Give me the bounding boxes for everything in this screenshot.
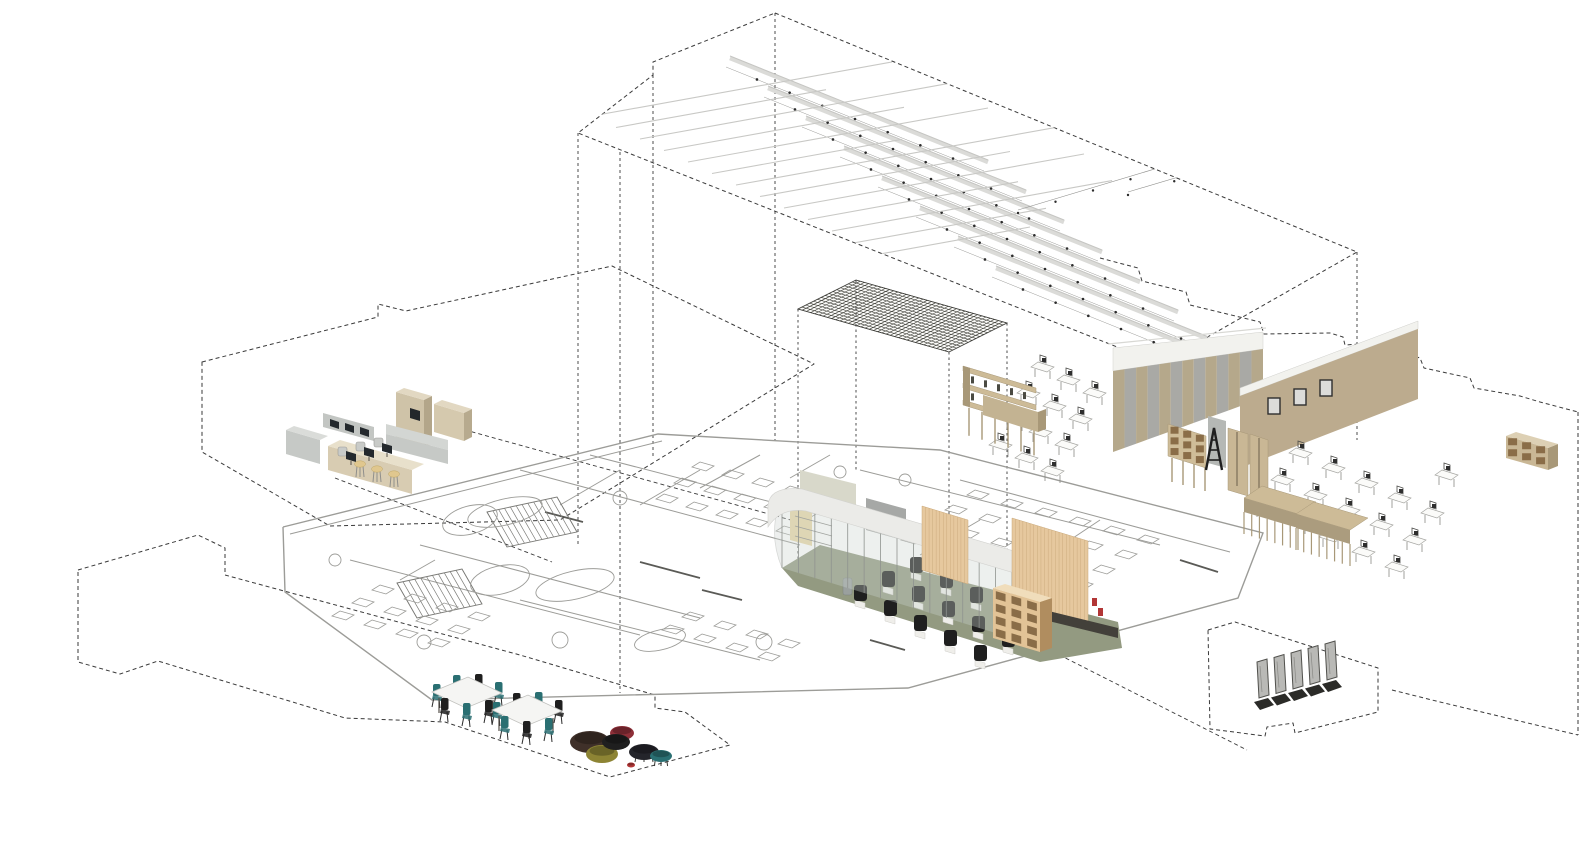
display-panel	[1294, 389, 1306, 405]
study-desk	[1271, 468, 1294, 492]
security-gate	[1305, 646, 1325, 697]
pouf	[602, 734, 630, 750]
task-chair	[356, 442, 365, 451]
plan-furniture-row	[662, 612, 800, 661]
pergola-canopy	[798, 280, 1007, 352]
study-desk	[1421, 501, 1444, 525]
stool	[389, 471, 400, 477]
wood-slat-wall	[922, 506, 968, 584]
glass-pavilion	[768, 470, 1122, 669]
study-desk	[1352, 540, 1375, 564]
display-panel	[1268, 398, 1280, 414]
security-gate	[1288, 650, 1308, 701]
display-panel	[1320, 380, 1332, 396]
study-desk	[1403, 528, 1426, 552]
task-chair	[374, 438, 383, 447]
lounge-chair	[884, 600, 897, 624]
red-books-accent	[1092, 598, 1097, 606]
lounge-chair	[914, 615, 927, 639]
stool	[372, 466, 383, 472]
pouf	[650, 750, 672, 766]
plan-furniture-row	[332, 585, 490, 647]
pouf	[627, 763, 635, 768]
lounge-chair	[944, 630, 957, 654]
reception-floor-plate-outline	[202, 266, 814, 526]
cafe-table-group	[492, 692, 564, 745]
exploded-axonometric-diagram	[0, 0, 1582, 845]
dining-chair	[440, 698, 450, 722]
study-desk	[1057, 368, 1080, 392]
security-gate	[1322, 641, 1342, 692]
dining-chair	[462, 703, 472, 727]
stair-core	[397, 569, 482, 618]
study-desk	[1083, 381, 1106, 405]
stool	[355, 461, 366, 467]
cafe-seating	[432, 674, 672, 768]
diagram-svg	[0, 0, 1582, 845]
storage-cabinet	[1228, 428, 1248, 496]
study-desk	[1322, 456, 1345, 480]
floor-plan-linework	[283, 434, 1263, 700]
lounge-chair	[974, 645, 987, 669]
lower-floor-plate-outline	[78, 535, 730, 777]
study-desk	[1043, 394, 1066, 418]
far-cubby-shelf	[1506, 432, 1558, 470]
study-desk	[1055, 433, 1078, 457]
study-desk	[1435, 463, 1458, 487]
study-desk	[1355, 471, 1378, 495]
dining-chair	[522, 721, 532, 745]
cubby-shelf-on-legs	[1168, 424, 1206, 491]
security-gate	[1254, 659, 1274, 710]
study-desk	[1031, 355, 1054, 379]
study-desk	[1388, 486, 1411, 510]
security-gates	[1254, 641, 1342, 710]
reception-desk	[286, 388, 472, 494]
red-books-accent	[1098, 608, 1103, 616]
study-desk	[1385, 555, 1408, 579]
security-gate	[1271, 655, 1291, 706]
study-desk	[1069, 407, 1092, 431]
study-desk	[1370, 513, 1393, 537]
task-chair	[338, 447, 347, 456]
dining-chair	[500, 716, 510, 740]
